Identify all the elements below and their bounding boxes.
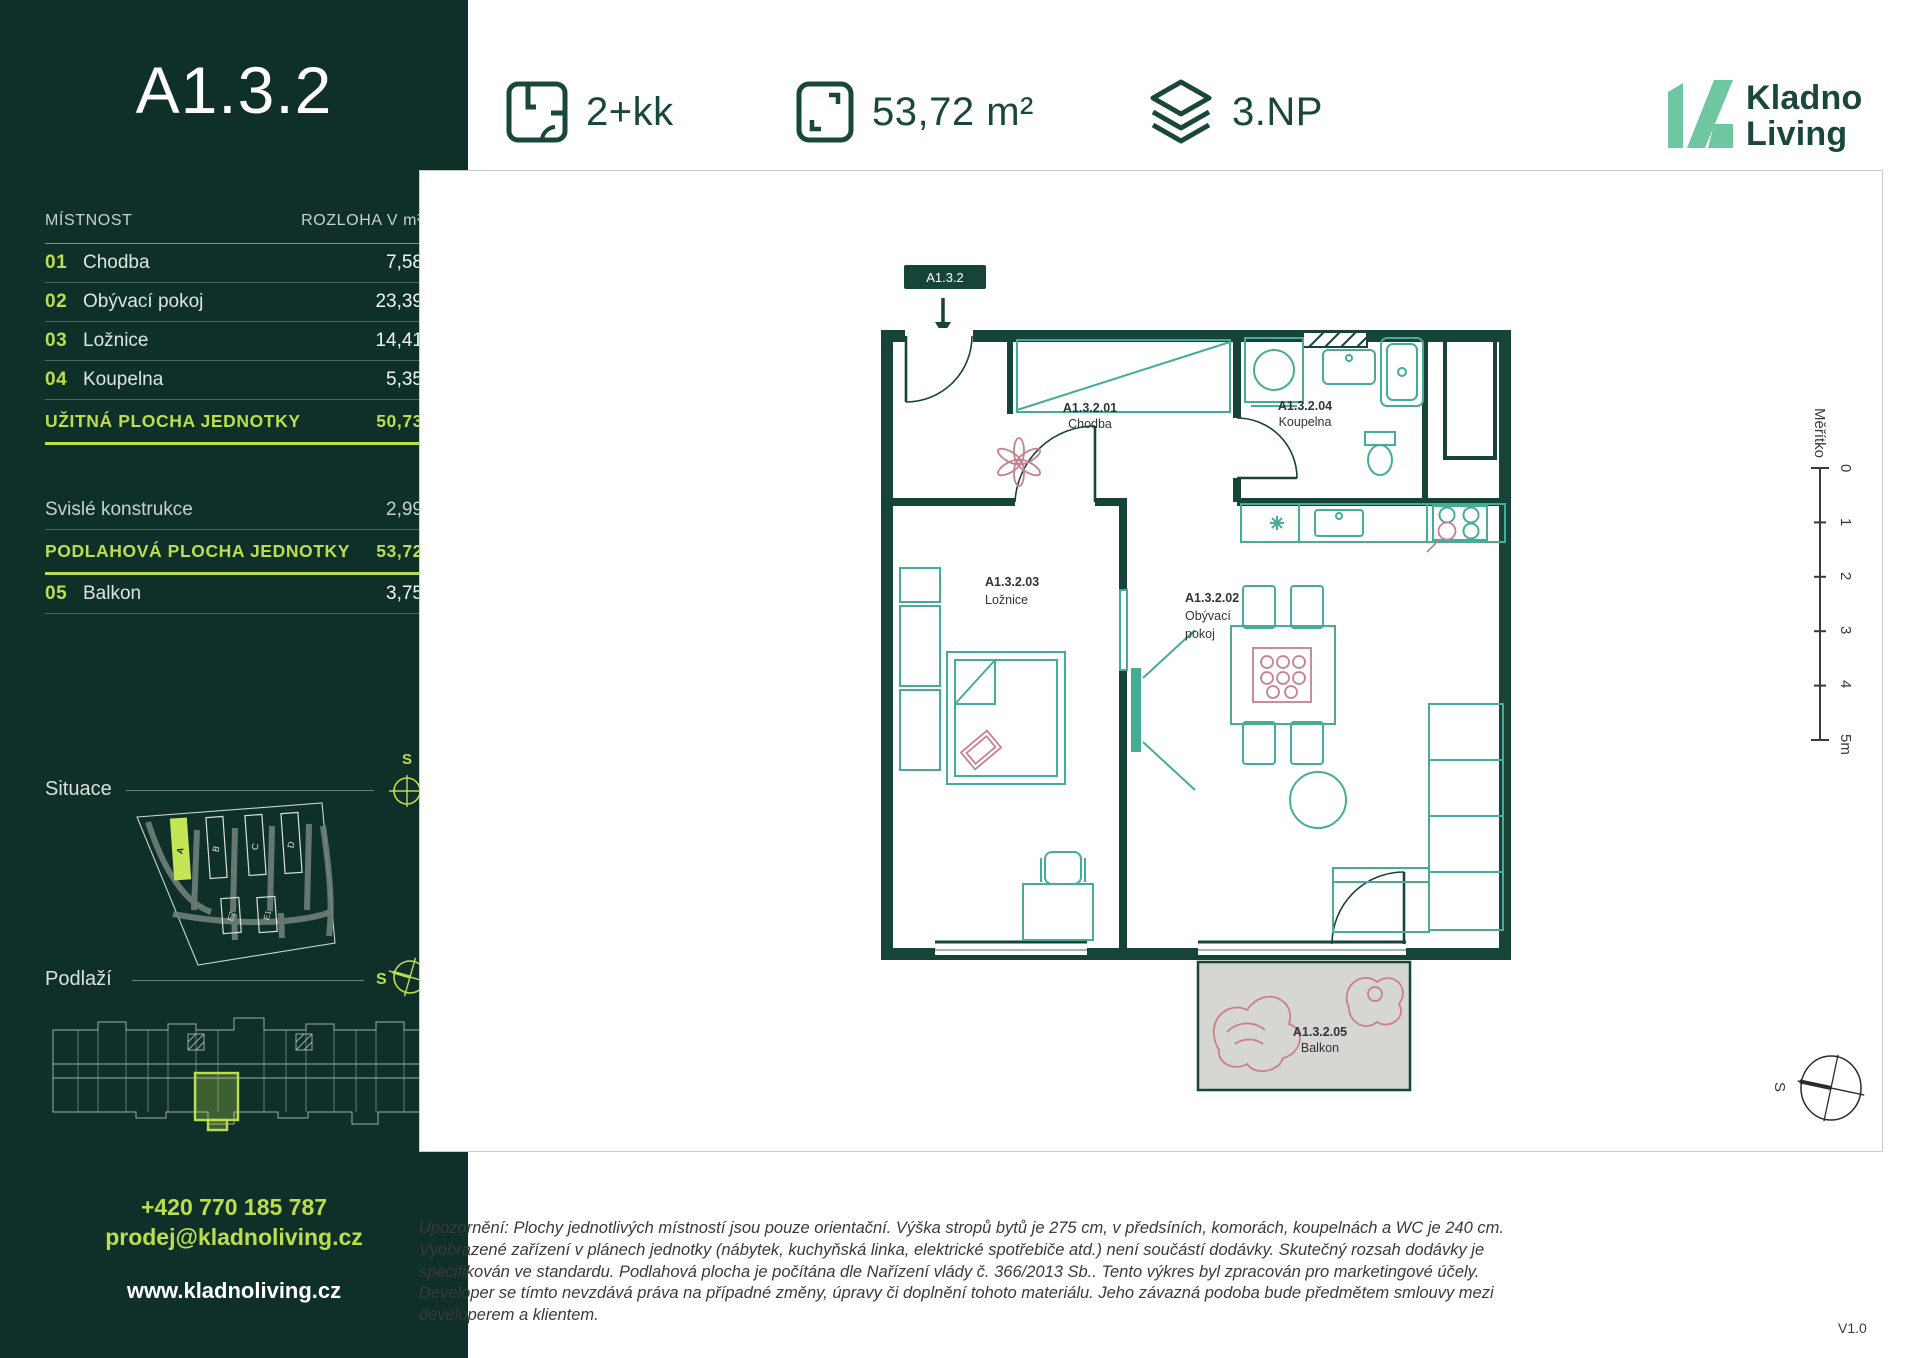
room-name-koupelna: Koupelna (1279, 415, 1332, 429)
unit-badge-text: A1.3.2 (926, 270, 964, 285)
area-value: 53,72 m² (872, 90, 1034, 135)
scale-tick: 5m (1837, 734, 1854, 755)
shaft-hatch (188, 1034, 312, 1050)
row-name: Obývací pokoj (83, 291, 375, 313)
version-label: V1.0 (1838, 1320, 1867, 1336)
situace-label: Situace (45, 778, 112, 801)
col-room-header: MÍSTNOST (45, 212, 132, 230)
col-area-header: ROZLOHA V m² (301, 212, 423, 230)
room-name-obyvaci-2: pokoj (1185, 627, 1215, 641)
row-number: 03 (45, 330, 83, 352)
table-row: 04 Koupelna 5,35 (45, 361, 423, 400)
room-name-obyvaci-1: Obývací (1185, 609, 1231, 623)
floor-area-value: 53,72 (376, 541, 423, 562)
podlazi-floor-outline (38, 1000, 440, 1150)
row-name: Ložnice (83, 330, 375, 352)
table-row: 01 Chodba 7,58 (45, 244, 423, 283)
situace-divider (126, 790, 374, 791)
scale-tick: 3 (1837, 626, 1854, 634)
row-number: 04 (45, 369, 83, 391)
layout-value: 2+kk (586, 90, 674, 135)
row-value: 7,58 (386, 252, 423, 274)
floor-plan-canvas: A1.3.2 (419, 170, 1883, 1152)
usable-area-row: UŽITNÁ PLOCHA JEDNOTKY 50,73 (45, 400, 423, 445)
sidebar-panel: A1.3.2 MÍSTNOST ROZLOHA V m² 01 Chodba 7… (0, 0, 468, 1358)
table-row: 03 Ložnice 14,41 (45, 322, 423, 361)
floor-area-label: PODLAHOVÁ PLOCHA JEDNOTKY (45, 541, 376, 562)
room-id-balkon: A1.3.2.05 (1293, 1025, 1347, 1039)
scale-tick: 1 (1837, 518, 1854, 526)
logo-line1: Kladno (1746, 80, 1862, 116)
area-icon (795, 80, 855, 144)
layout-icon (505, 80, 569, 144)
contact-block: +420 770 185 787 prodej@kladnoliving.cz … (0, 1192, 468, 1304)
row-value: 23,39 (375, 291, 423, 313)
disclaimer-text: Upozornění: Plochy jednotlivých místnost… (419, 1218, 1547, 1327)
table-row: 02 Obývací pokoj 23,39 (45, 283, 423, 322)
contact-website[interactable]: www.kladnoliving.cz (0, 1278, 468, 1304)
usable-area-value: 50,73 (376, 411, 423, 432)
vertical-structures-label: Svislé konstrukce (45, 499, 386, 521)
scale-tick: 4 (1837, 680, 1854, 688)
kladno-living-logo-text: Kladno Living (1746, 80, 1862, 152)
vertical-structures-value: 2,99 (386, 499, 423, 521)
scale-tick: 2 (1837, 572, 1854, 580)
floor-level-value: 3.NP (1232, 90, 1323, 135)
room-name-chodba: Chodba (1068, 417, 1112, 431)
table-header: MÍSTNOST ROZLOHA V m² (45, 212, 423, 244)
row-value: 14,41 (375, 330, 423, 352)
vertical-structures-row: Svislé konstrukce 2,99 (45, 491, 423, 530)
contact-phone[interactable]: +420 770 185 787 (0, 1192, 468, 1222)
row-name: Balkon (83, 583, 386, 605)
scale-tick: 0 (1837, 464, 1854, 472)
compass-letter: S (402, 751, 412, 768)
floor-area-row: PODLAHOVÁ PLOCHA JEDNOTKY 53,72 (45, 530, 423, 575)
shaft-hatch (1303, 332, 1367, 347)
row-number: 02 (45, 291, 83, 313)
room-name-loznice: Ložnice (985, 593, 1028, 607)
compass-letter: S (1771, 1082, 1788, 1092)
floor-level-icon (1148, 76, 1214, 150)
room-area-table: MÍSTNOST ROZLOHA V m² 01 Chodba 7,58 02 … (45, 212, 423, 614)
room-id-koupelna: A1.3.2.04 (1278, 399, 1332, 413)
room-name-balkon: Balkon (1301, 1041, 1339, 1055)
row-value: 5,35 (386, 369, 423, 391)
row-name: Chodba (83, 252, 386, 274)
unit-id-title: A1.3.2 (0, 52, 468, 128)
compass-letter: S (376, 971, 387, 988)
room-id-loznice: A1.3.2.03 (985, 575, 1039, 589)
plan-border (420, 171, 1883, 1152)
podlazi-divider (132, 980, 364, 981)
row-name: Koupelna (83, 369, 386, 391)
building-label: B (210, 845, 221, 853)
contact-email[interactable]: prodej@kladnoliving.cz (0, 1222, 468, 1252)
row-value: 3,75 (386, 583, 423, 605)
building-label: C (249, 842, 260, 851)
row-number: 01 (45, 252, 83, 274)
kladno-living-logo-mark (1668, 80, 1734, 148)
usable-area-label: UŽITNÁ PLOCHA JEDNOTKY (45, 411, 376, 432)
podlazi-label: Podlaží (45, 968, 112, 991)
row-number: 05 (45, 583, 83, 605)
situace-site-map: A B C D E2 E1 (115, 798, 350, 976)
scale-label: Měřítko (1811, 408, 1828, 458)
highlighted-unit-outline (195, 1073, 238, 1130)
room-id-obyvaci: A1.3.2.02 (1185, 591, 1239, 605)
balcony-row: 05 Balkon 3,75 (45, 575, 423, 614)
logo-line2: Living (1746, 116, 1862, 152)
room-id-chodba: A1.3.2.01 (1063, 401, 1117, 415)
fridge-snowflake-icon (1270, 516, 1284, 530)
building-label: D (285, 840, 296, 849)
